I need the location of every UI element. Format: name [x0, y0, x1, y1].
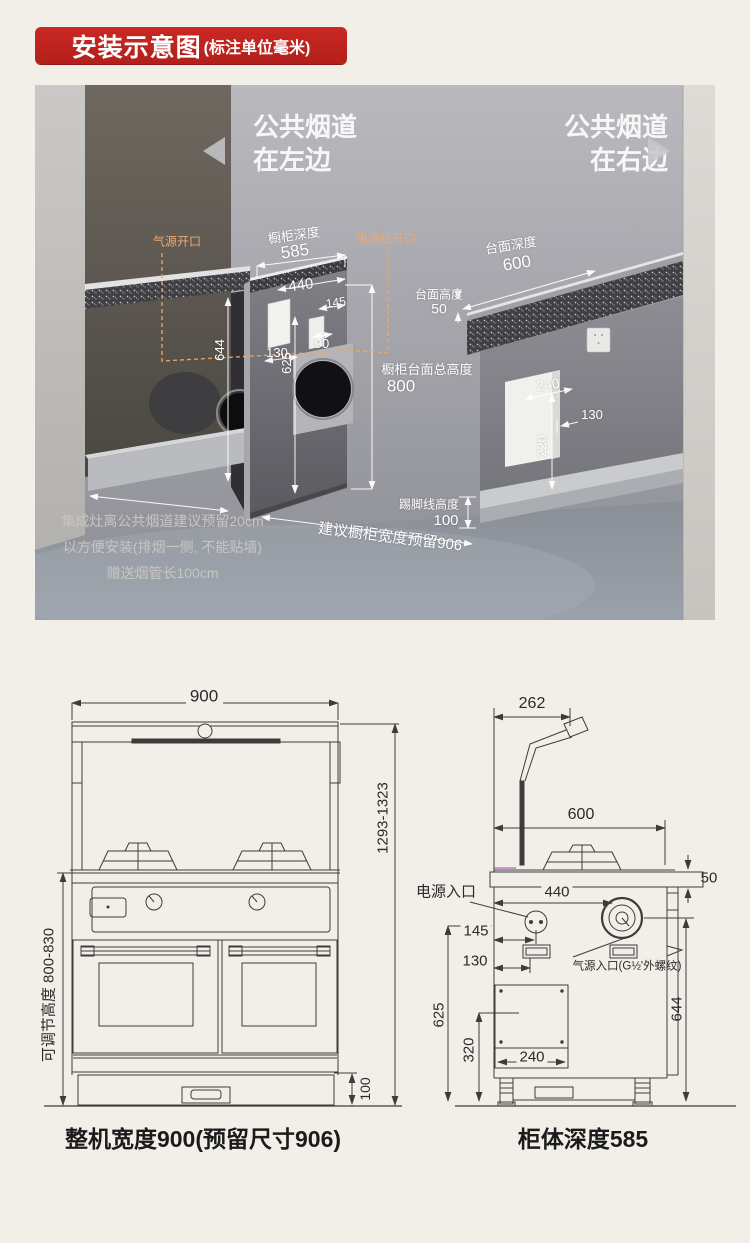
side-counter-depth-dim: 600 [565, 807, 598, 823]
skirting-height-value: 100 [433, 513, 458, 530]
note-line1: 集成灶离公共烟道建议预留20cm [45, 508, 280, 534]
side-view-drawing [448, 708, 736, 1106]
side-box-width-dim: 240 [516, 1050, 547, 1065]
arrow-left-icon [203, 137, 225, 165]
flue-left-line2: 在左边 [253, 144, 357, 177]
countertop-height-value: 50 [431, 301, 447, 316]
cabinet-depth-value: 585 [280, 241, 311, 263]
dim-145: 145 [325, 295, 347, 311]
dim-130-right: 130 [581, 408, 603, 422]
gas-opening-label: 气源开口 [153, 235, 201, 248]
front-adjustable-height-dim: 可调节高度 800-830 [42, 928, 57, 1062]
arrow-right-icon [648, 137, 670, 165]
flue-left-line1: 公共烟道 [253, 111, 357, 144]
dim-625: 625 [280, 352, 294, 374]
front-base-height-dim: 100 [358, 1077, 372, 1100]
note-line3: 赠送烟管长100cm [45, 560, 280, 586]
skirting-height-label: 踢脚线高度 [399, 498, 459, 511]
side-vent-offset-dim: 130 [459, 954, 490, 969]
note-line2: 以方便安装(排烟一侧, 不能贴墙) [45, 534, 280, 560]
dim-440: 440 [287, 276, 314, 296]
side-power-height-dim: 625 [432, 1002, 447, 1027]
technical-drawings: 900 1293-1323 可调节高度 800-830 100 整机宽度900(… [0, 660, 750, 1238]
front-view-drawing [44, 703, 402, 1106]
dim-240: 240 [535, 376, 560, 394]
side-power-offset-dim: 145 [460, 924, 491, 939]
dim-220: 220 [535, 435, 549, 457]
power-inlet-label: 电源入口 [416, 885, 476, 900]
title-badge: 安装示意图 (标注单位毫米) [35, 27, 347, 64]
side-gas-offset-dim: 440 [541, 885, 572, 900]
page-title: 安装示意图 [72, 28, 202, 64]
unit-note: (标注单位毫米) [204, 34, 311, 58]
page: { "badge": {"title": "安装示意图", "unit": "(… [0, 0, 750, 1238]
front-view-caption: 整机宽度900(预留尺寸906) [65, 1120, 341, 1154]
counter-total-height-value: 800 [387, 378, 415, 397]
gas-inlet-label: 气源入口(G½'外螺纹) [573, 961, 682, 973]
side-counter-thickness-dim: 50 [701, 871, 718, 886]
flue-left-heading: 公共烟道 在左边 [253, 111, 357, 177]
dim-90: 90 [315, 337, 329, 351]
counter-total-height-label: 橱柜台面总高度 [381, 363, 472, 377]
side-box-height-dim: 320 [462, 1037, 477, 1062]
side-hood-depth-dim: 262 [519, 696, 546, 712]
installation-note: 集成灶离公共烟道建议预留20cm 以方便安装(排烟一侧, 不能贴墙) 赠送烟管长… [45, 508, 280, 586]
side-view-caption: 柜体深度585 [518, 1120, 648, 1154]
front-overall-height-dim: 1293-1323 [376, 782, 391, 854]
dim-644: 644 [213, 339, 227, 361]
power-opening-label: 电源线开口 [356, 232, 416, 245]
installation-scene: 公共烟道 在左边 公共烟道 在右边 气源开口 橱柜深度 585 电源线开口 44… [35, 85, 715, 620]
front-width-dim: 900 [187, 688, 221, 705]
side-gas-height-dim: 644 [670, 996, 685, 1021]
